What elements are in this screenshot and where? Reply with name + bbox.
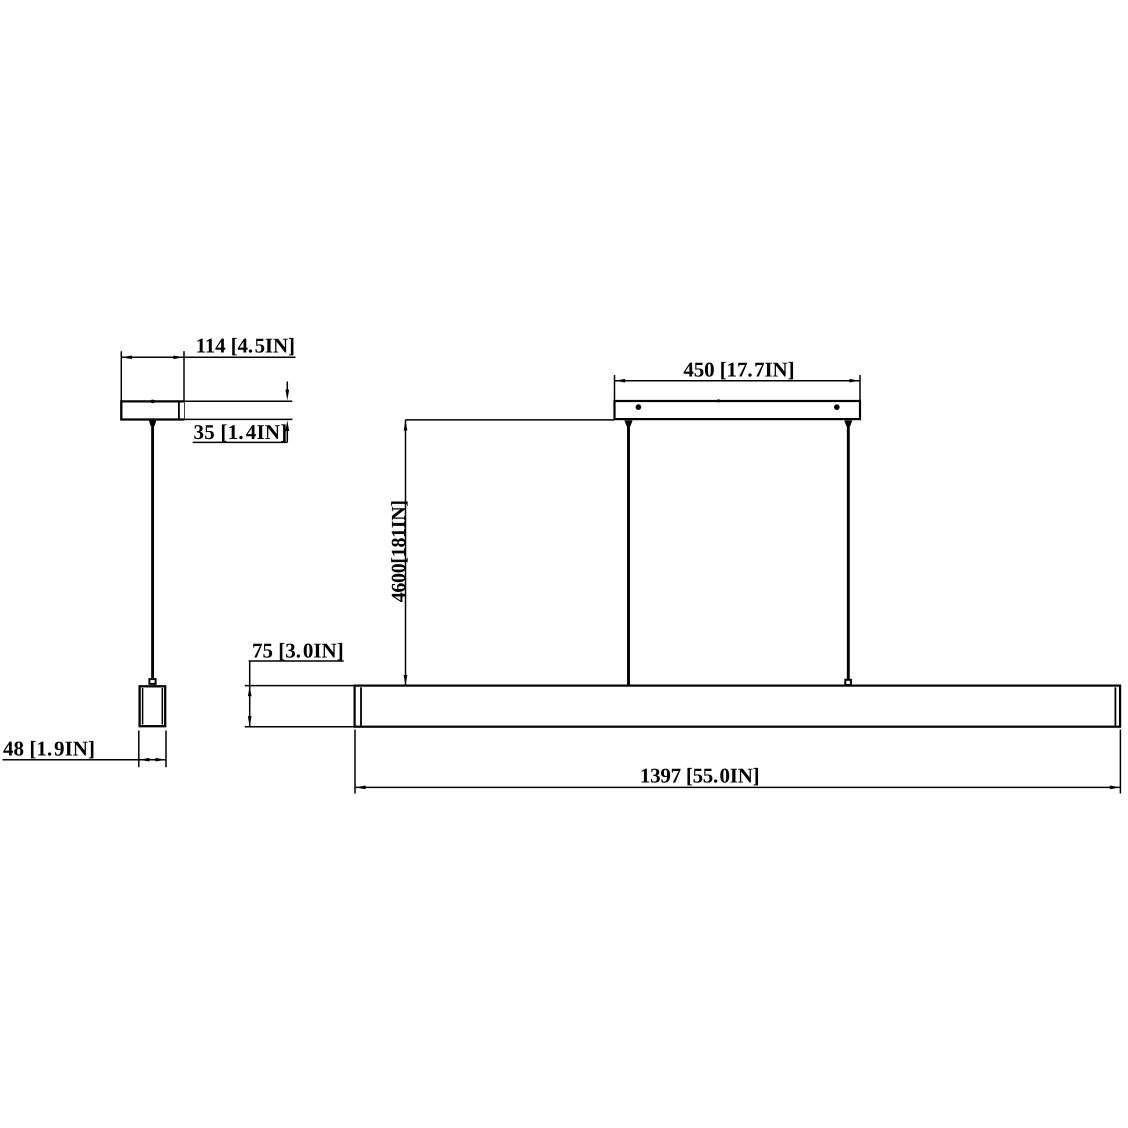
svg-text:4600[181IN]: 4600[181IN] bbox=[388, 500, 410, 602]
svg-text:75 [3. 0IN]: 75 [3. 0IN] bbox=[252, 638, 344, 662]
svg-text:114 [4. 5IN]: 114 [4. 5IN] bbox=[196, 334, 295, 358]
svg-text:1397 [55. 0IN]: 1397 [55. 0IN] bbox=[640, 763, 760, 787]
svg-text:450 [17. 7IN]: 450 [17. 7IN] bbox=[683, 358, 794, 382]
svg-text:48 [1. 9IN]: 48 [1. 9IN] bbox=[3, 736, 95, 760]
svg-text:35 [1. 4IN]: 35 [1. 4IN] bbox=[194, 420, 288, 444]
